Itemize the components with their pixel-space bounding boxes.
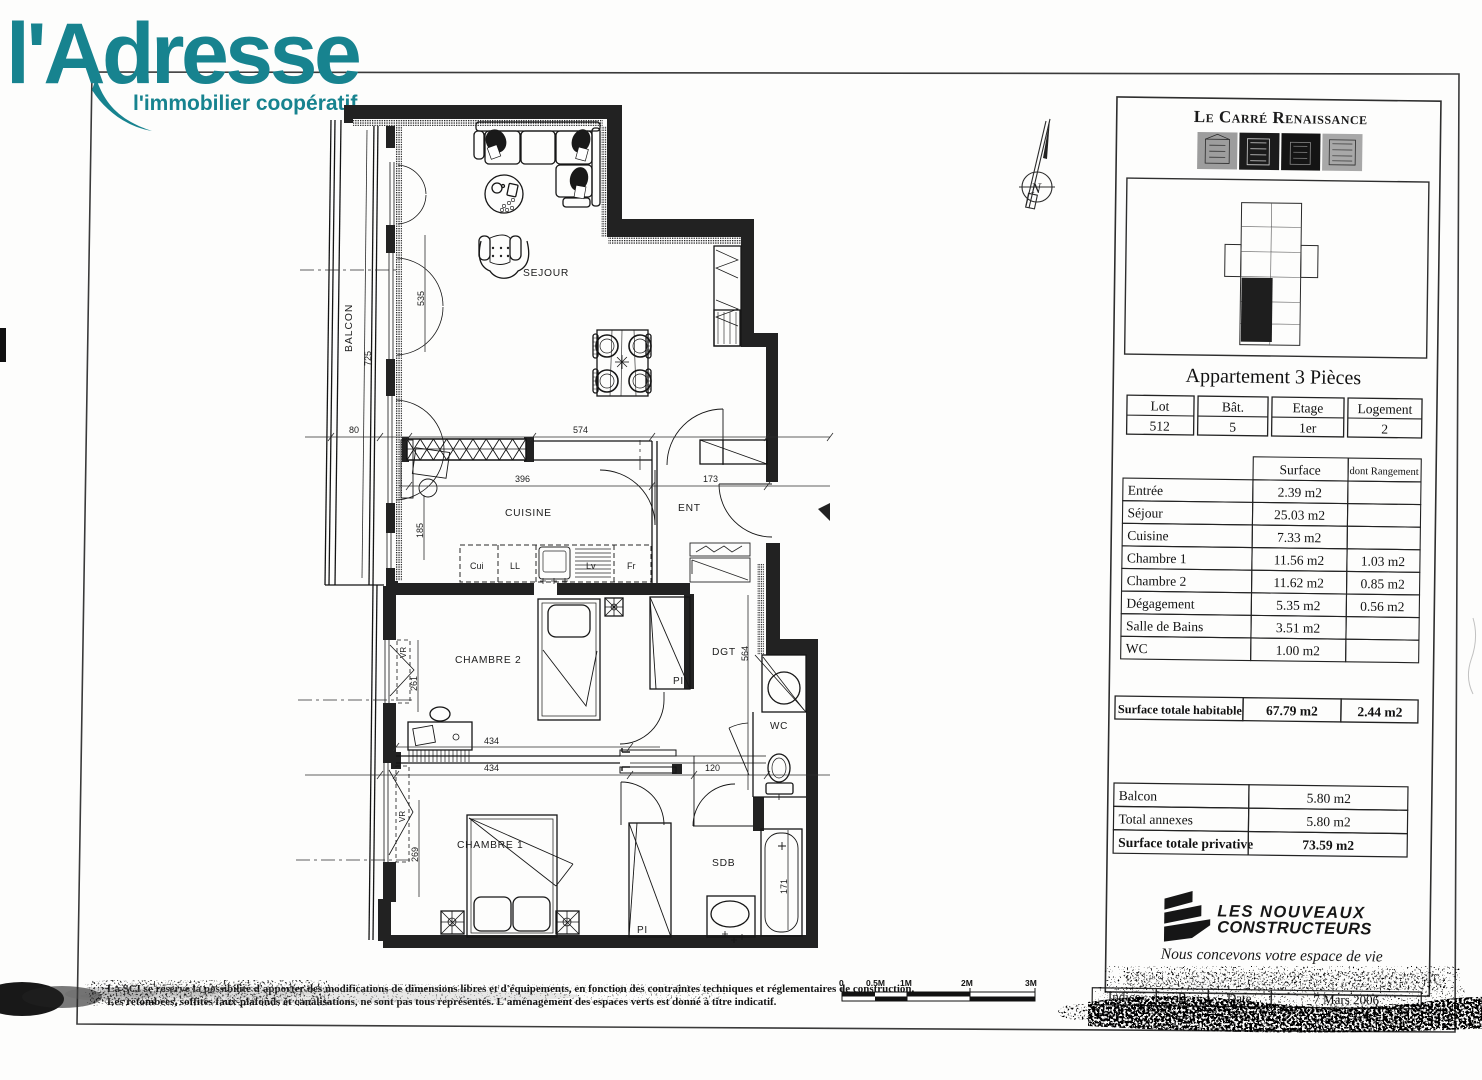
- svg-text:512: 512: [1149, 418, 1169, 433]
- svg-text:564: 564: [740, 646, 750, 661]
- svg-text:120: 120: [705, 763, 720, 773]
- svg-text:185: 185: [415, 523, 425, 538]
- svg-text:535: 535: [416, 291, 426, 306]
- svg-text:2.44 m2: 2.44 m2: [1357, 704, 1402, 720]
- svg-text:2M: 2M: [961, 978, 973, 988]
- svg-text:434: 434: [484, 763, 499, 773]
- svg-text:Surface totale privative: Surface totale privative: [1118, 835, 1253, 852]
- svg-text:Séjour: Séjour: [1127, 505, 1163, 520]
- svg-text:Entrée: Entrée: [1128, 483, 1163, 498]
- svg-text:5.35 m2: 5.35 m2: [1276, 598, 1320, 614]
- svg-text:WC: WC: [1126, 641, 1148, 656]
- svg-text:Dégagement: Dégagement: [1126, 596, 1195, 612]
- svg-text:ENT: ENT: [678, 503, 701, 514]
- svg-text:l'Adresse: l'Adresse: [6, 6, 359, 102]
- svg-text:WC: WC: [770, 721, 788, 732]
- svg-text:SDB: SDB: [712, 858, 735, 869]
- svg-text:1.03 m2: 1.03 m2: [1361, 553, 1405, 569]
- svg-text:CHAMBRE 1: CHAMBRE 1: [457, 840, 523, 851]
- svg-text:73.59 m2: 73.59 m2: [1302, 837, 1354, 853]
- svg-text:434: 434: [484, 736, 499, 746]
- svg-text:5.80 m2: 5.80 m2: [1307, 791, 1351, 807]
- svg-text:BALCON: BALCON: [344, 304, 355, 352]
- svg-text:5.80 m2: 5.80 m2: [1306, 814, 1350, 830]
- svg-text:Le Carré Renaissance: Le Carré Renaissance: [1194, 107, 1368, 128]
- svg-text:725: 725: [363, 351, 373, 366]
- svg-text:Appartement 3 Pièces: Appartement 3 Pièces: [1185, 365, 1361, 389]
- svg-text:Total annexes: Total annexes: [1118, 811, 1193, 827]
- svg-text:Balcon: Balcon: [1119, 788, 1158, 804]
- svg-text:11.62 m2: 11.62 m2: [1273, 575, 1324, 591]
- svg-text:Nous concevons votre espace de: Nous concevons votre espace de vie: [1160, 946, 1383, 966]
- svg-text:1er: 1er: [1299, 420, 1317, 435]
- svg-text:574: 574: [573, 425, 588, 435]
- svg-text:PI: PI: [673, 676, 684, 687]
- svg-text:Salle de Bains: Salle de Bains: [1126, 618, 1203, 634]
- svg-text:Cui: Cui: [470, 561, 484, 571]
- svg-text:25.03 m2: 25.03 m2: [1274, 507, 1325, 523]
- svg-text:CHAMBRE 2: CHAMBRE 2: [455, 655, 521, 666]
- svg-text:3.51 m2: 3.51 m2: [1276, 620, 1320, 636]
- svg-text:Etage: Etage: [1292, 400, 1323, 415]
- svg-text:Logement: Logement: [1357, 401, 1412, 417]
- svg-text:VR: VR: [398, 811, 407, 822]
- svg-text:Bât.: Bât.: [1222, 399, 1244, 414]
- svg-text:DGT: DGT: [712, 647, 736, 658]
- svg-text:CUISINE: CUISINE: [505, 508, 552, 519]
- svg-text:Lot: Lot: [1150, 398, 1169, 413]
- svg-text:Chambre 2: Chambre 2: [1127, 573, 1187, 589]
- svg-text:0: 0: [839, 978, 844, 988]
- svg-text:5: 5: [1229, 419, 1236, 434]
- svg-text:Chambre 1: Chambre 1: [1127, 550, 1187, 566]
- svg-text:261: 261: [409, 676, 419, 691]
- svg-text:3M: 3M: [1025, 978, 1037, 988]
- svg-text:269: 269: [410, 847, 420, 862]
- svg-text:2.39 m2: 2.39 m2: [1278, 485, 1322, 501]
- svg-text:1.00 m2: 1.00 m2: [1276, 643, 1320, 659]
- svg-text:Surface: Surface: [1279, 462, 1320, 478]
- svg-text:7.33 m2: 7.33 m2: [1277, 530, 1321, 546]
- svg-text:Fr: Fr: [627, 561, 636, 571]
- svg-text:396: 396: [515, 474, 530, 484]
- svg-text:l'immobilier coopératif: l'immobilier coopératif: [133, 92, 358, 115]
- svg-text:CONSTRUCTEURS: CONSTRUCTEURS: [1217, 918, 1372, 938]
- svg-text:11.56 m2: 11.56 m2: [1274, 552, 1325, 568]
- svg-text:171: 171: [779, 879, 789, 894]
- svg-text:Lv: Lv: [586, 561, 596, 571]
- svg-text:2: 2: [1381, 421, 1388, 436]
- svg-text:Surface totale habitable: Surface totale habitable: [1118, 702, 1243, 718]
- svg-text:0.5M: 0.5M: [866, 978, 885, 988]
- svg-text:0.85 m2: 0.85 m2: [1360, 576, 1404, 592]
- svg-text:67.79 m2: 67.79 m2: [1266, 703, 1318, 719]
- svg-text:SEJOUR: SEJOUR: [523, 268, 569, 279]
- svg-text:LL: LL: [510, 561, 520, 571]
- svg-text:N: N: [1030, 181, 1042, 197]
- svg-text:1M: 1M: [900, 978, 912, 988]
- svg-text:VR: VR: [399, 647, 408, 658]
- svg-text:0.56 m2: 0.56 m2: [1360, 599, 1404, 615]
- svg-text:173: 173: [703, 474, 718, 484]
- svg-text:80: 80: [349, 425, 359, 435]
- svg-text:PI: PI: [637, 925, 648, 936]
- svg-text:dont Rangement: dont Rangement: [1349, 466, 1418, 478]
- svg-text:Cuisine: Cuisine: [1127, 528, 1168, 544]
